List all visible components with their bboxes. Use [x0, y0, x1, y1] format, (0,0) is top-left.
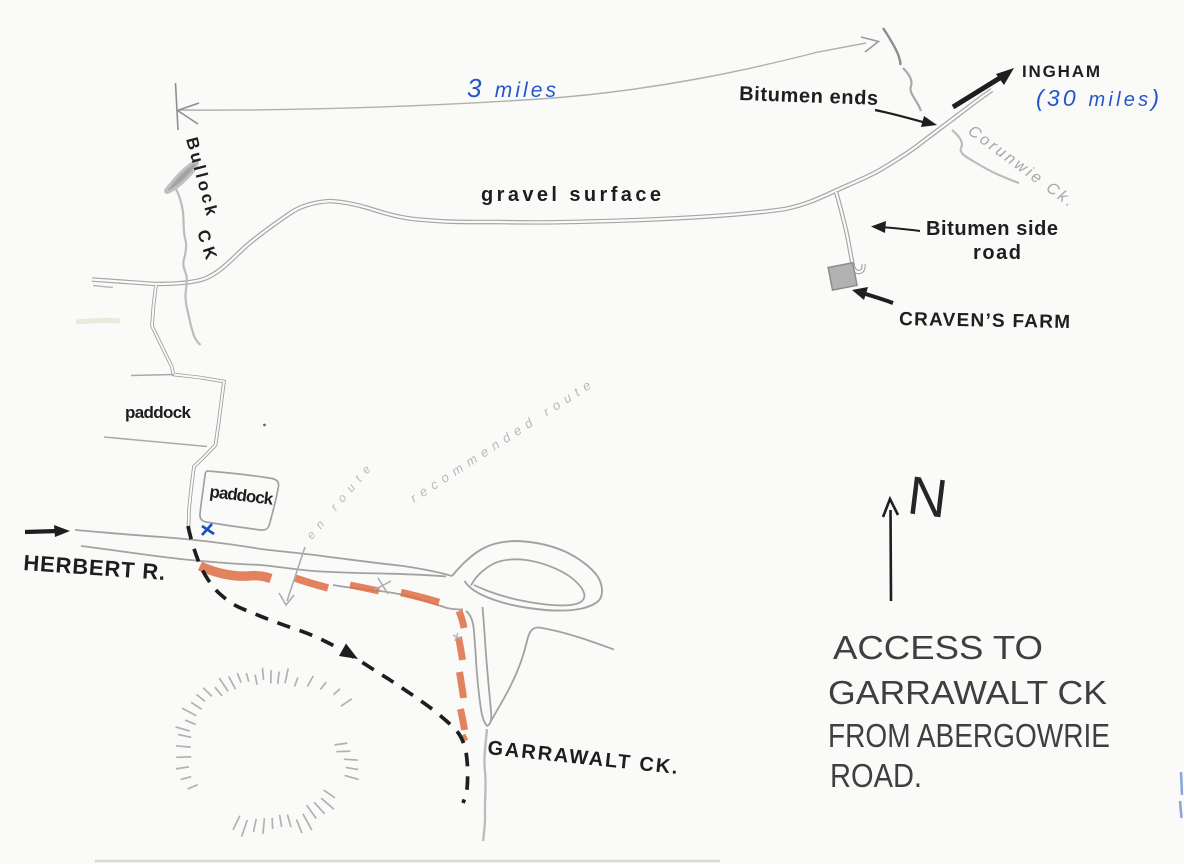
- svg-text:(30 miles): (30 miles): [1036, 85, 1159, 111]
- svg-text:GARRAWALT CK: GARRAWALT CK: [828, 674, 1107, 711]
- svg-text:ROAD.: ROAD.: [830, 757, 922, 794]
- svg-text:road: road: [973, 242, 1021, 264]
- svg-text:ACCESS TO: ACCESS TO: [833, 629, 1043, 666]
- svg-text:INGHAM: INGHAM: [1022, 62, 1102, 81]
- svg-text:FROM ABERGOWRIE: FROM ABERGOWRIE: [828, 717, 1110, 754]
- svg-text:Bitumen side: Bitumen side: [926, 218, 1058, 240]
- svg-text:N: N: [905, 465, 951, 529]
- svg-text:paddock: paddock: [125, 403, 192, 422]
